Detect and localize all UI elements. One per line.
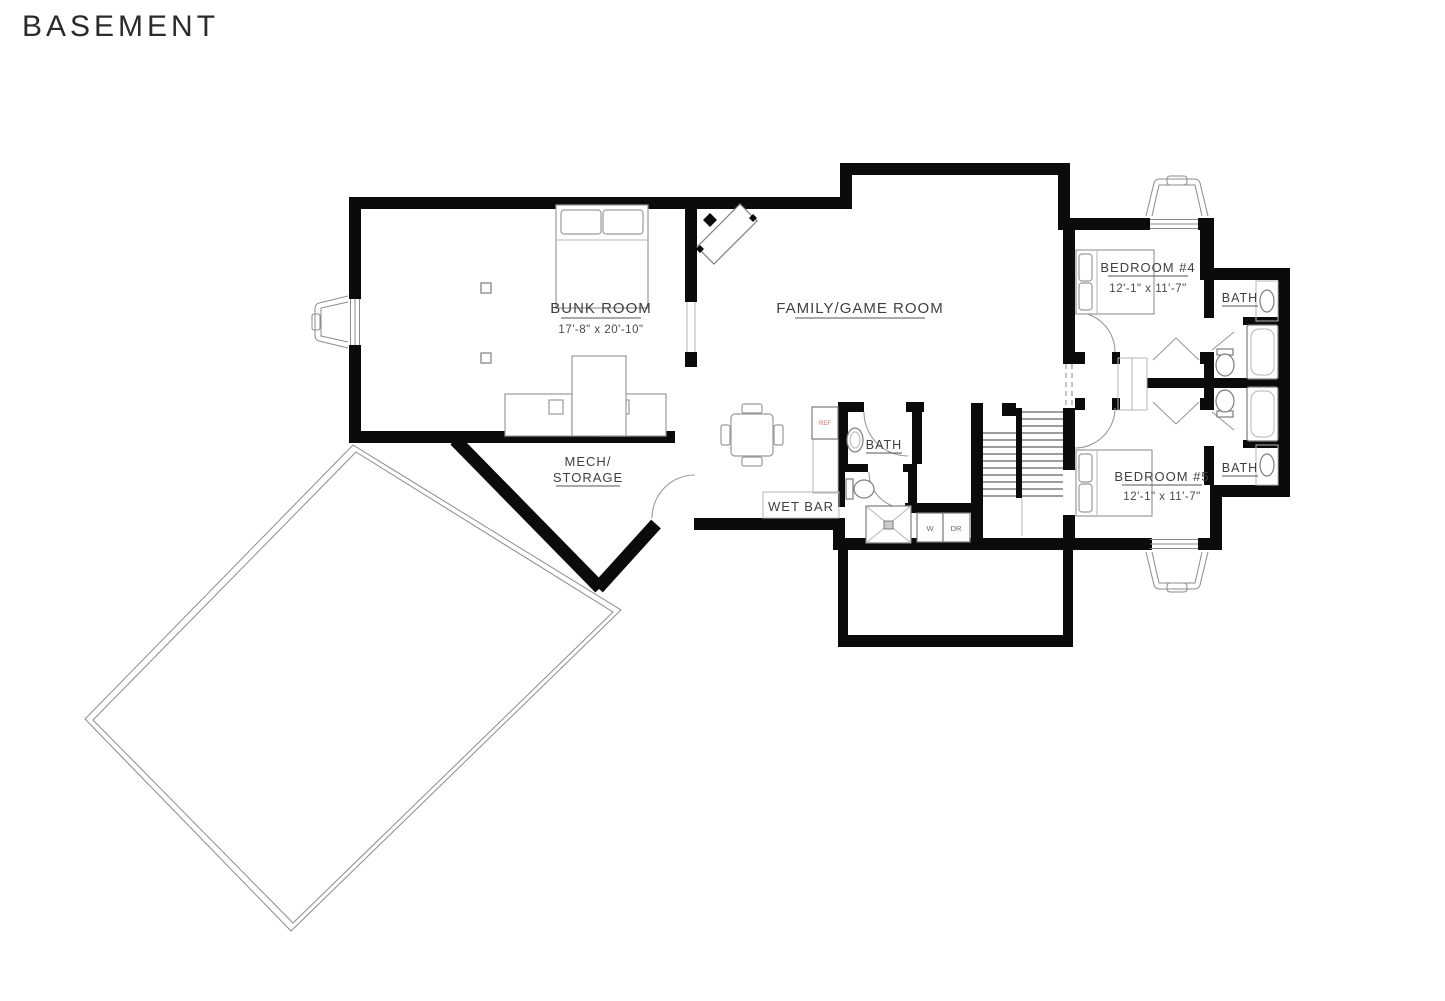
cased-opening-bunk-family: [687, 302, 695, 352]
cased-opening-hall: [1066, 364, 1072, 408]
washer-label: W: [926, 524, 934, 533]
pillow: [549, 400, 563, 414]
fridge-label: REF: [819, 421, 831, 427]
floor-plan-svg: BASEMENT BUNK ROOM 17'-8" x 20'-10" FAMI…: [0, 0, 1445, 1001]
shower-drain: [884, 521, 893, 529]
bath-lower-double-door: [1153, 402, 1199, 424]
wet-bar-label: WET BAR: [768, 499, 834, 514]
mech-label-line1: MECH/: [565, 454, 612, 469]
pillow: [1079, 254, 1092, 281]
laundry-fixtures: [917, 513, 970, 542]
page-title: BASEMENT: [22, 10, 219, 43]
chair: [742, 457, 762, 466]
support-post: [481, 283, 491, 293]
bunk-room-furniture: [481, 205, 666, 436]
bunk-bed-center: [572, 356, 626, 436]
family-room-label: FAMILY/GAME ROOM: [776, 300, 943, 317]
bedroom4-dims: 12'-1" x 11'-7": [1109, 283, 1186, 295]
pillow: [561, 210, 601, 234]
family-room-furniture: [721, 404, 783, 466]
bath-upper-double-door: [1153, 338, 1199, 360]
unexcavated-outline: [85, 445, 621, 931]
sink: [1260, 290, 1274, 312]
bedroom4-label: BEDROOM #4: [1100, 260, 1195, 275]
bedroom5-door-arc: [1075, 408, 1115, 448]
bunk-window: [312, 296, 360, 348]
mech-door-arc: [652, 475, 695, 518]
bedroom5-dims: 12'-1" x 11'-7": [1123, 491, 1200, 503]
staircase: [983, 412, 1063, 536]
support-post: [481, 353, 491, 363]
bath-upper-inner-door: [1212, 332, 1234, 350]
toilet-tank: [846, 479, 853, 499]
game-table: [731, 414, 773, 456]
bunk-room-dims: 17'-8" x 20'-10": [558, 324, 643, 336]
bedroom4-door-arc: [1075, 312, 1115, 352]
corner-fireplace: [696, 204, 757, 264]
bath-upper-label: BATH: [1222, 291, 1258, 305]
toilet-bowl: [854, 480, 874, 498]
pillow: [1079, 454, 1092, 482]
hall-closet: [1118, 358, 1147, 410]
dryer-label: DR: [951, 524, 962, 533]
bedroom5-label: BEDROOM #5: [1114, 469, 1209, 484]
basement-floor-plan: BASEMENT BUNK ROOM 17'-8" x 20'-10" FAMI…: [0, 0, 1445, 1001]
chair: [774, 425, 783, 445]
toilet-bowl: [1216, 390, 1234, 412]
bath-lower-label: BATH: [1222, 461, 1258, 475]
pillow: [603, 210, 643, 234]
pillow: [1079, 283, 1092, 310]
main-bath-label: BATH: [866, 438, 902, 452]
pillow: [1079, 484, 1092, 512]
toilet-bowl: [1216, 354, 1234, 376]
walls: [349, 163, 1290, 647]
chair: [721, 425, 730, 445]
chair: [742, 404, 762, 413]
mech-label-line2: STORAGE: [553, 470, 623, 485]
wet-bar-cabinet: [813, 439, 838, 493]
bunk-room-label: BUNK ROOM: [550, 300, 652, 317]
sink: [1260, 454, 1274, 476]
